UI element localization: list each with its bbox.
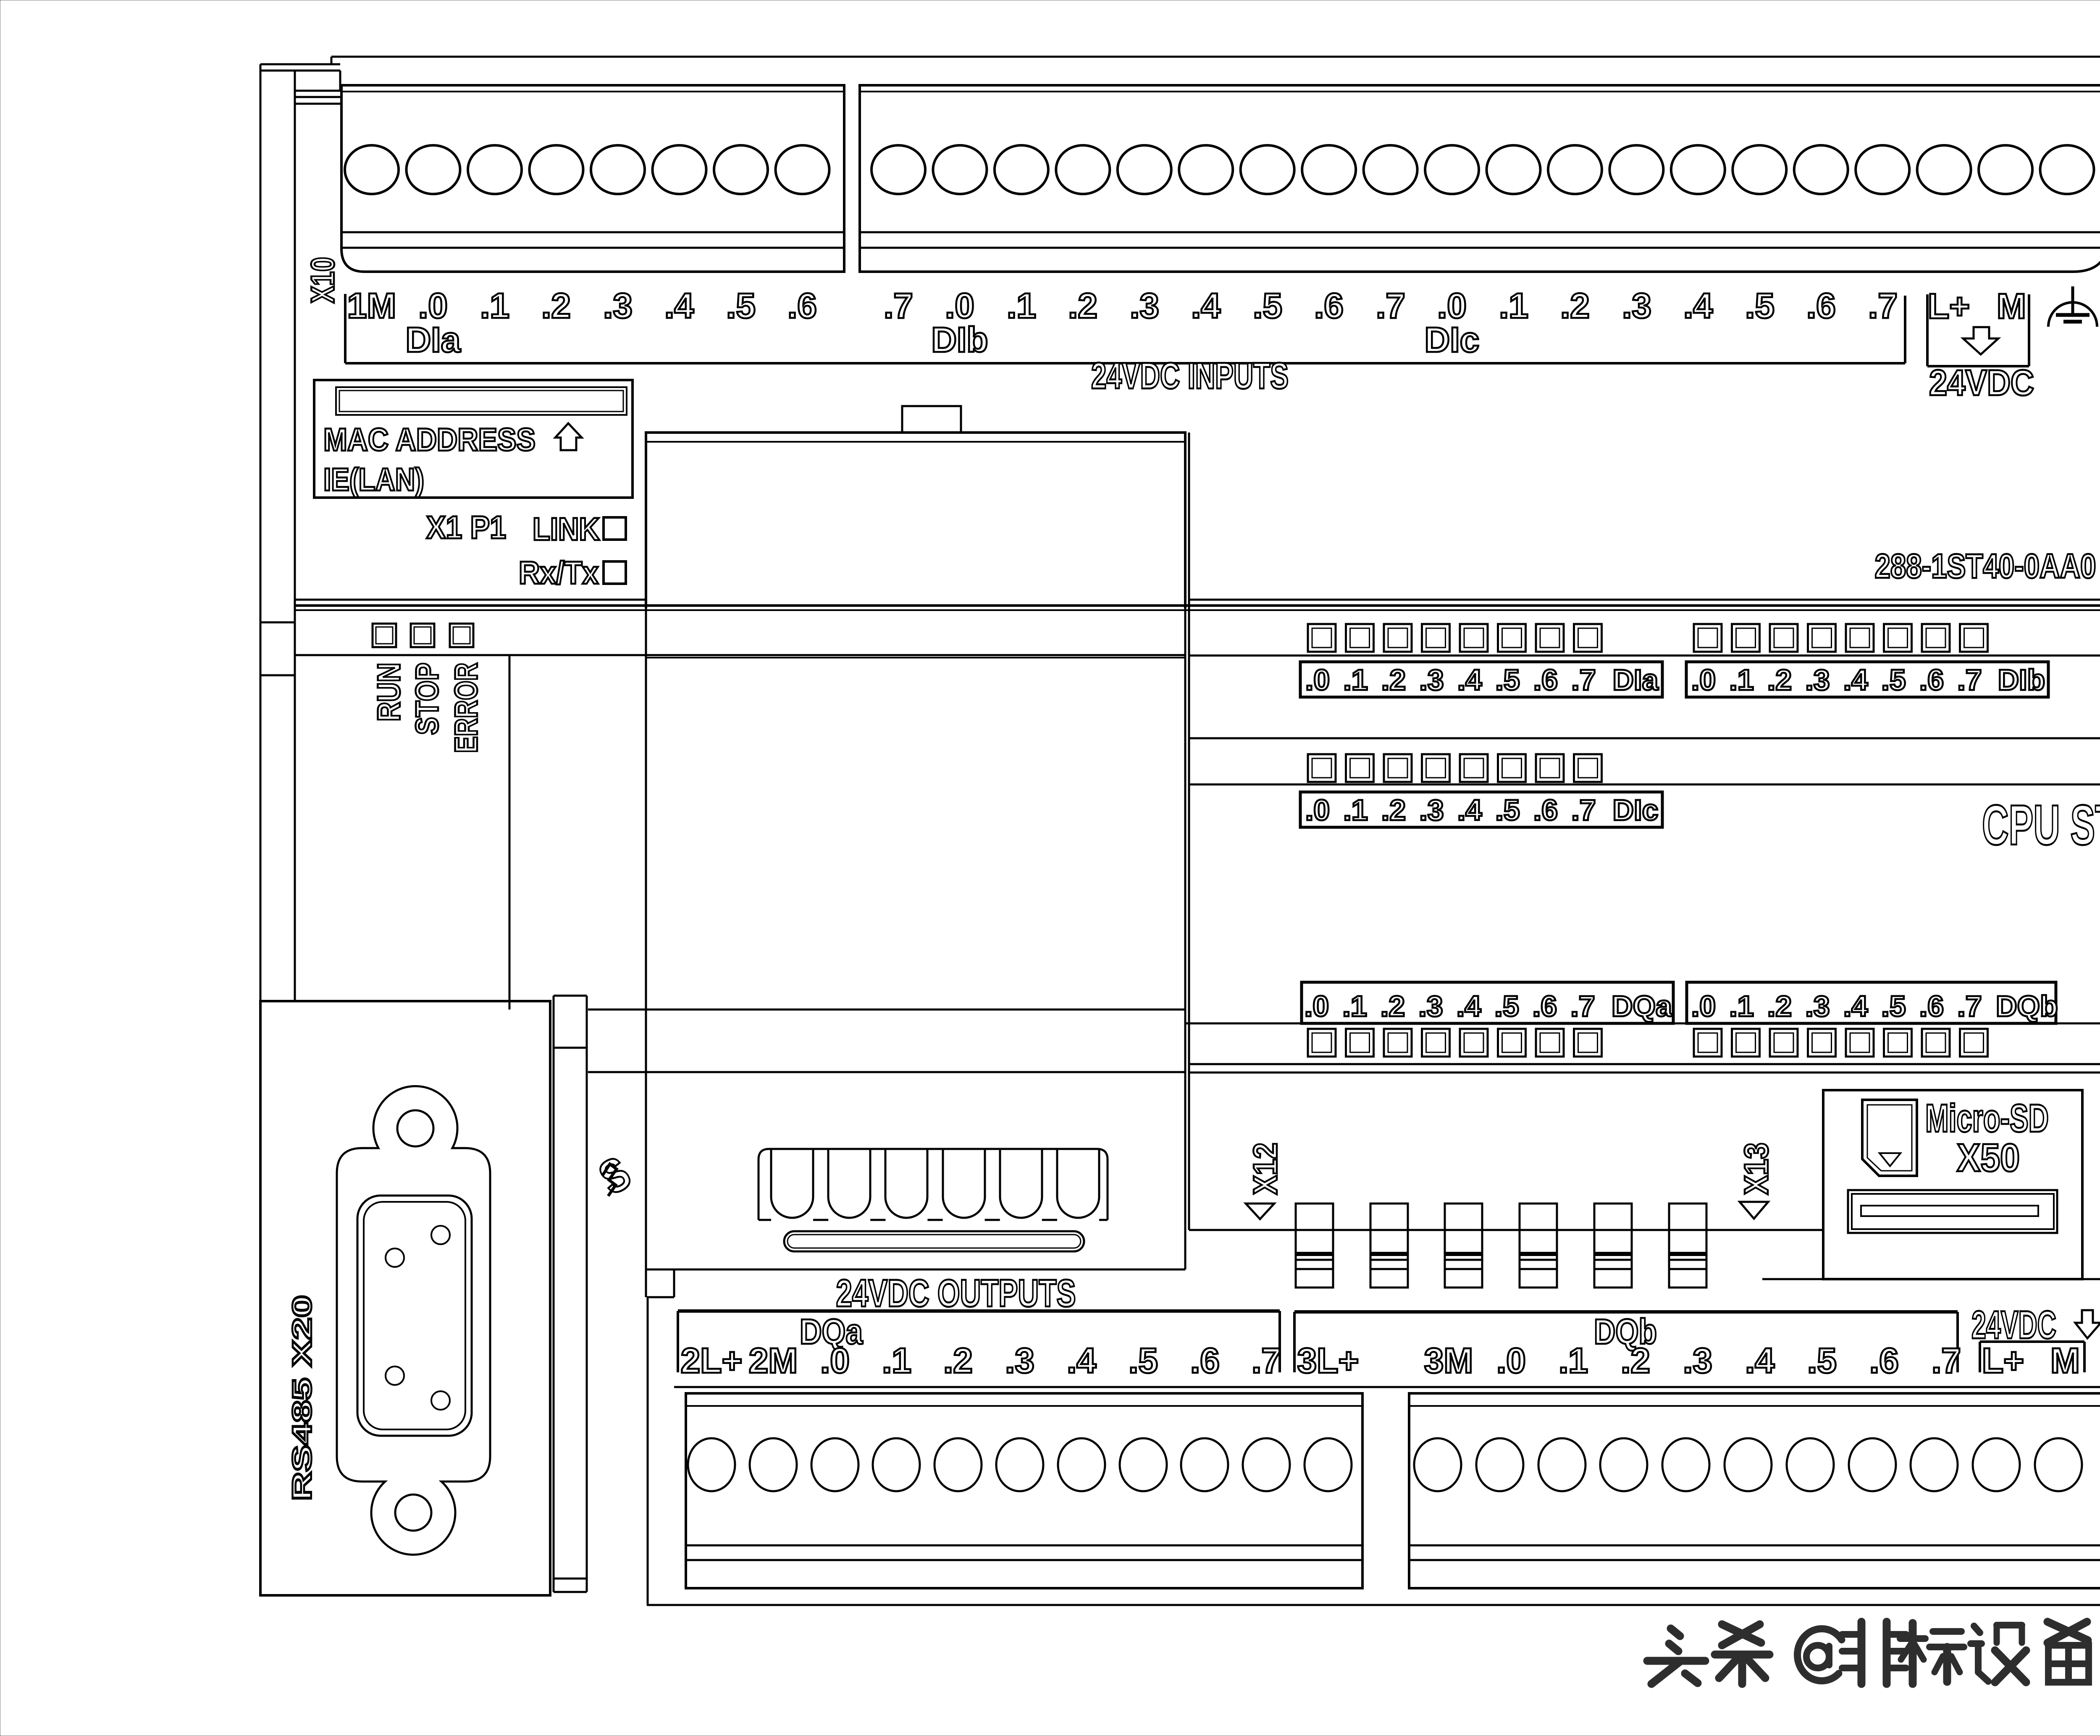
svg-text:L+: L+ xyxy=(1928,286,1970,326)
svg-text:.4: .4 xyxy=(1457,990,1481,1023)
svg-text:.4: .4 xyxy=(1745,1341,1774,1380)
svg-text:.5: .5 xyxy=(1881,663,1906,696)
svg-text:.7: .7 xyxy=(1252,1341,1281,1380)
svg-text:M: M xyxy=(1997,286,2026,326)
svg-text:.0: .0 xyxy=(1496,1341,1526,1380)
svg-text:RUN: RUN xyxy=(371,663,407,721)
svg-text:LINK: LINK xyxy=(533,511,600,547)
svg-text:M: M xyxy=(2050,1341,2080,1380)
svg-text:.4: .4 xyxy=(1191,286,1221,325)
svg-text:MAC ADDRESS: MAC ADDRESS xyxy=(323,422,535,458)
svg-text:X1 P1: X1 P1 xyxy=(426,510,506,545)
svg-text:.1: .1 xyxy=(1729,990,1753,1023)
svg-text:.3: .3 xyxy=(1805,663,1830,696)
svg-text:.7: .7 xyxy=(1571,663,1596,696)
svg-text:.2: .2 xyxy=(943,1341,973,1380)
svg-text:.5: .5 xyxy=(1129,1341,1158,1380)
svg-text:.3: .3 xyxy=(1419,663,1444,696)
svg-text:.2: .2 xyxy=(541,286,571,325)
svg-text:.2: .2 xyxy=(1767,990,1792,1023)
svg-text:.5: .5 xyxy=(1494,990,1519,1023)
svg-text:.2: .2 xyxy=(1381,794,1406,826)
svg-text:.3: .3 xyxy=(603,286,633,325)
svg-text:.7: .7 xyxy=(884,286,913,325)
svg-text:X50: X50 xyxy=(1957,1135,2020,1180)
svg-text:.3: .3 xyxy=(1005,1341,1034,1380)
svg-text:.7: .7 xyxy=(1571,794,1596,826)
svg-text:X10: X10 xyxy=(304,257,341,303)
svg-text:.3: .3 xyxy=(1683,1341,1712,1380)
svg-text:.0: .0 xyxy=(1691,990,1716,1023)
svg-text:.4: .4 xyxy=(1457,794,1482,826)
svg-text:L+: L+ xyxy=(1982,1341,2024,1380)
svg-text:.5: .5 xyxy=(1495,794,1520,826)
svg-text:.4: .4 xyxy=(1843,663,1868,696)
svg-text:.4: .4 xyxy=(1457,663,1482,696)
svg-text:.6: .6 xyxy=(1533,990,1557,1023)
svg-text:288-1ST40-0AA0: 288-1ST40-0AA0 xyxy=(1875,547,2096,585)
svg-text:24VDC: 24VDC xyxy=(1929,363,2034,403)
svg-text:.7: .7 xyxy=(1957,663,1982,696)
svg-text:24VDC: 24VDC xyxy=(1971,1303,2056,1347)
svg-text:.1: .1 xyxy=(1499,286,1528,325)
svg-text:.0: .0 xyxy=(1305,794,1330,826)
svg-text:DIb: DIb xyxy=(1998,663,2045,696)
svg-text:.6: .6 xyxy=(1869,1341,1899,1380)
svg-text:.6: .6 xyxy=(1533,794,1558,826)
svg-text:DIa: DIa xyxy=(406,320,461,359)
svg-text:.6: .6 xyxy=(1919,663,1944,696)
svg-text:DIa: DIa xyxy=(1613,663,1659,696)
svg-text:2L+: 2L+ xyxy=(680,1341,742,1380)
svg-text:.3: .3 xyxy=(1805,990,1830,1023)
svg-text:ERROR: ERROR xyxy=(449,663,484,753)
svg-text:.2: .2 xyxy=(1381,990,1405,1023)
svg-text:.4: .4 xyxy=(1067,1341,1096,1380)
svg-text:.5: .5 xyxy=(726,286,756,325)
svg-text:Micro-SD: Micro-SD xyxy=(1925,1096,2049,1140)
svg-text:.3: .3 xyxy=(1622,286,1651,325)
svg-text:.7: .7 xyxy=(1932,1341,1961,1380)
svg-text:3L+: 3L+ xyxy=(1297,1341,1359,1380)
svg-text:.6: .6 xyxy=(787,286,817,325)
svg-text:.1: .1 xyxy=(1007,286,1036,325)
svg-text:.5: .5 xyxy=(1253,286,1282,325)
svg-text:.1: .1 xyxy=(1559,1341,1588,1380)
svg-text:DIb: DIb xyxy=(931,320,988,359)
svg-text:.5: .5 xyxy=(1881,990,1906,1023)
svg-text:.7: .7 xyxy=(1376,286,1405,325)
svg-text:.7: .7 xyxy=(1868,286,1898,325)
svg-text:.4: .4 xyxy=(1843,990,1868,1023)
svg-text:.4: .4 xyxy=(664,286,694,325)
svg-text:X13: X13 xyxy=(1738,1143,1775,1195)
svg-text:.5: .5 xyxy=(1495,663,1520,696)
svg-text:.1: .1 xyxy=(1343,663,1368,696)
svg-text:.0: .0 xyxy=(1305,663,1330,696)
svg-text:DIc: DIc xyxy=(1613,794,1659,826)
svg-text:.6: .6 xyxy=(1190,1341,1220,1380)
svg-text:.3: .3 xyxy=(1130,286,1159,325)
svg-text:.2: .2 xyxy=(1621,1341,1650,1380)
svg-text:.0: .0 xyxy=(1305,990,1329,1023)
svg-text:DQb: DQb xyxy=(1996,990,2058,1023)
svg-text:.3: .3 xyxy=(1418,990,1443,1023)
svg-text:24VDC OUTPUTS: 24VDC OUTPUTS xyxy=(836,1272,1076,1315)
svg-text:.1: .1 xyxy=(1729,663,1753,696)
svg-text:.3: .3 xyxy=(1419,794,1444,826)
svg-text:.0: .0 xyxy=(945,286,974,325)
svg-text:1M: 1M xyxy=(347,286,396,325)
svg-text:.4: .4 xyxy=(1683,286,1713,325)
svg-text:3M: 3M xyxy=(1424,1341,1473,1380)
svg-text:.2: .2 xyxy=(1068,286,1097,325)
svg-text:DIc: DIc xyxy=(1425,320,1480,359)
svg-text:.6: .6 xyxy=(1314,286,1344,325)
svg-text:24VDC INPUTS: 24VDC INPUTS xyxy=(1091,355,1289,396)
svg-text:.2: .2 xyxy=(1381,663,1406,696)
svg-text:.2: .2 xyxy=(1560,286,1590,325)
svg-text:.0: .0 xyxy=(418,286,448,325)
svg-text:.1: .1 xyxy=(882,1341,911,1380)
svg-text:.2: .2 xyxy=(1767,663,1792,696)
svg-text:S: S xyxy=(591,1146,639,1205)
svg-text:.6: .6 xyxy=(1919,990,1944,1023)
svg-text:.5: .5 xyxy=(1807,1341,1837,1380)
svg-text:.7: .7 xyxy=(1957,990,1982,1023)
svg-text:.6: .6 xyxy=(1533,663,1558,696)
svg-text:CPU ST40: CPU ST40 xyxy=(1982,793,2100,857)
svg-text:.5: .5 xyxy=(1745,286,1774,325)
svg-text:.1: .1 xyxy=(1342,990,1367,1023)
svg-text:X12: X12 xyxy=(1247,1143,1284,1195)
svg-text:RS485 X20: RS485 X20 xyxy=(287,1295,317,1501)
svg-text:DQa: DQa xyxy=(1612,990,1672,1023)
svg-text:.1: .1 xyxy=(480,286,509,325)
svg-text:.7: .7 xyxy=(1570,990,1595,1023)
svg-text:2M: 2M xyxy=(749,1341,798,1380)
svg-text:.0: .0 xyxy=(1437,286,1467,325)
svg-text:IE(LAN): IE(LAN) xyxy=(323,462,424,498)
svg-text:.0: .0 xyxy=(820,1341,850,1380)
svg-text:.0: .0 xyxy=(1691,663,1716,696)
svg-text:.6: .6 xyxy=(1806,286,1836,325)
svg-text:STOP: STOP xyxy=(409,663,445,735)
svg-text:Rx/Tx: Rx/Tx xyxy=(519,555,598,591)
svg-text:.1: .1 xyxy=(1343,794,1368,826)
